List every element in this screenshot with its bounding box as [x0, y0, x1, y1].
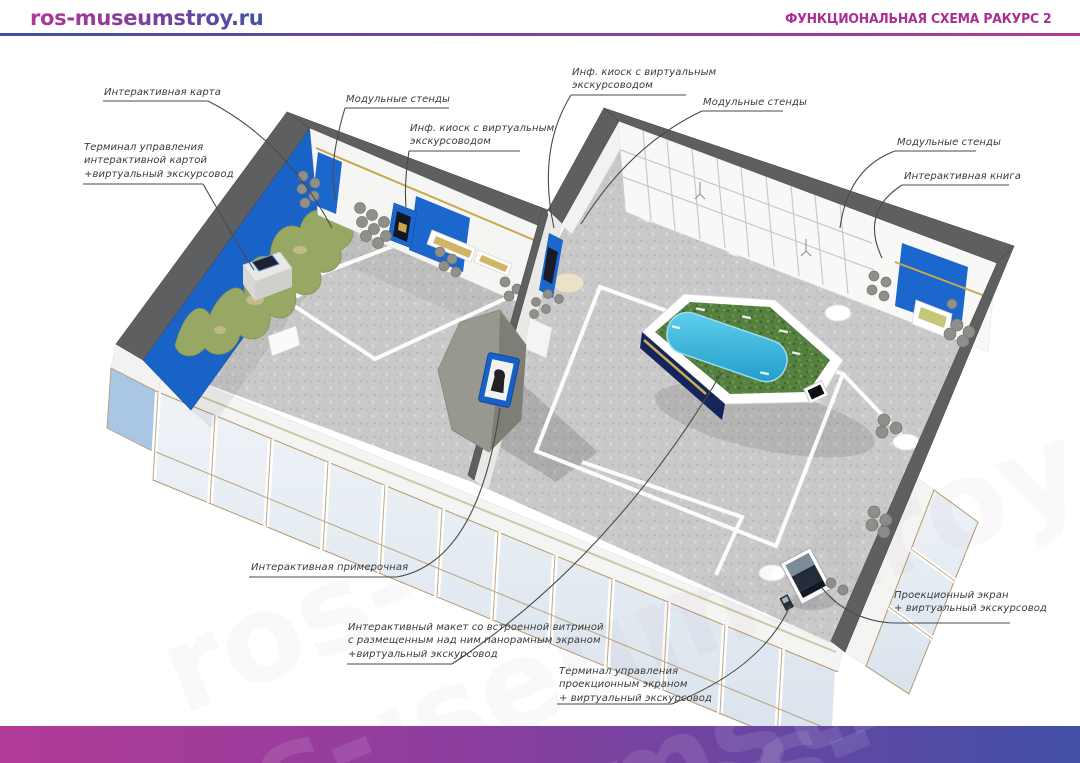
header: ros-museumstroy.ru ФУНКЦИОНАЛЬНАЯ СХЕМА …	[0, 0, 1080, 40]
footer-watermark-right: ros-museumstroy	[602, 726, 1080, 763]
label-modular-stands-2: Модульные стенды	[703, 96, 807, 109]
round-table	[552, 273, 584, 293]
footer-bar: ros-museumstroy ros-museumstroy	[0, 726, 1080, 763]
scheme-page: Интерактивная карта Терминал управления …	[0, 0, 1080, 763]
footer-watermark-left: ros-museumstroy	[103, 726, 1080, 763]
label-interactive-model: Интерактивный макет со встроенной витрин…	[348, 621, 604, 661]
label-interactive-map: Интерактивная карта	[104, 86, 221, 99]
label-map-terminal: Терминал управления интерактивной картой…	[84, 141, 234, 181]
label-projector-terminal: Терминал управления проекционным экраном…	[559, 665, 712, 705]
label-modular-stands-1: Модульные стенды	[346, 93, 450, 106]
label-fitting-room: Интерактивная примерочная	[251, 561, 408, 574]
label-info-kiosk-1: Инф. киоск с виртуальным экскурсоводом	[410, 122, 554, 149]
label-info-kiosk-2: Инф. киоск с виртуальным экскурсоводом	[572, 66, 716, 93]
label-interactive-book: Интерактивная книга	[904, 170, 1021, 183]
page-title: ФУНКЦИОНАЛЬНАЯ СХЕМА РАКУРС 2	[786, 11, 1052, 27]
site-logo: ros-museumstroy.ru	[30, 6, 263, 30]
scheme-canvas: Интерактивная карта Терминал управления …	[0, 0, 1080, 763]
label-projection-screen: Проекционный экран + виртуальный экскурс…	[894, 589, 1047, 616]
label-modular-stands-3: Модульные стенды	[897, 136, 1001, 149]
header-rule	[0, 33, 1080, 36]
